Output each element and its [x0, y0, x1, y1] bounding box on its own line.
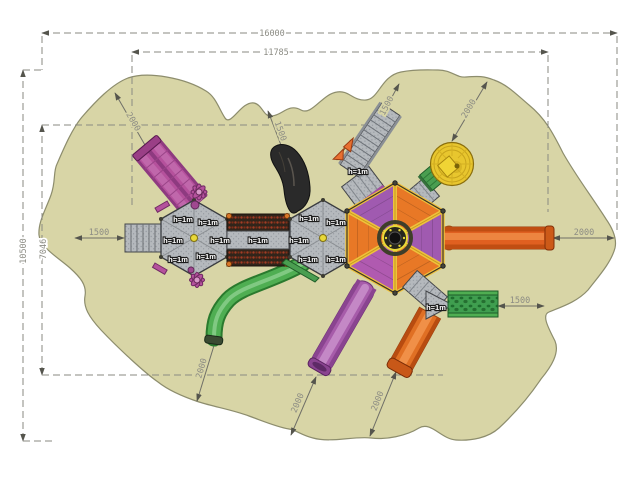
height-label: h=1m [348, 167, 368, 176]
height-label: h=1m [326, 255, 346, 264]
yellow-dome-roof [431, 143, 474, 186]
dim-right-clearance: 2000 [574, 228, 594, 238]
orange-tube-slide-right [441, 226, 554, 250]
height-label: h=1m [426, 303, 446, 312]
height-label: h=1m [173, 215, 193, 224]
height-label: h=1m [168, 255, 188, 264]
height-label: h=1m [198, 218, 218, 227]
dim-inner-width: 11785 [263, 48, 289, 58]
height-label: h=1m [299, 214, 319, 223]
height-label: h=1m [196, 252, 216, 261]
height-label: h=1m [248, 236, 268, 245]
height-label: h=1m [326, 218, 346, 227]
left-access-ramp [125, 224, 161, 252]
plan-svg: h=1m h=1m h=1m h=1m h=1m h=1m h=1m h=1m … [0, 0, 640, 480]
dim-overall-width: 16000 [259, 29, 285, 39]
height-label: h=1m [210, 236, 230, 245]
height-label: h=1m [289, 236, 309, 245]
dim-left-clearance: 1500 [89, 228, 109, 238]
height-label: h=1m [163, 236, 183, 245]
dim-right-lower-clearance: 1500 [510, 296, 530, 306]
height-label: h=1m [298, 255, 318, 264]
dim-inner-height: 7046 [39, 239, 49, 259]
dim-overall-height: 10500 [19, 238, 29, 264]
plan-drawing: h=1m h=1m h=1m h=1m h=1m h=1m h=1m h=1m … [0, 0, 640, 480]
green-climb-wall [448, 291, 498, 317]
